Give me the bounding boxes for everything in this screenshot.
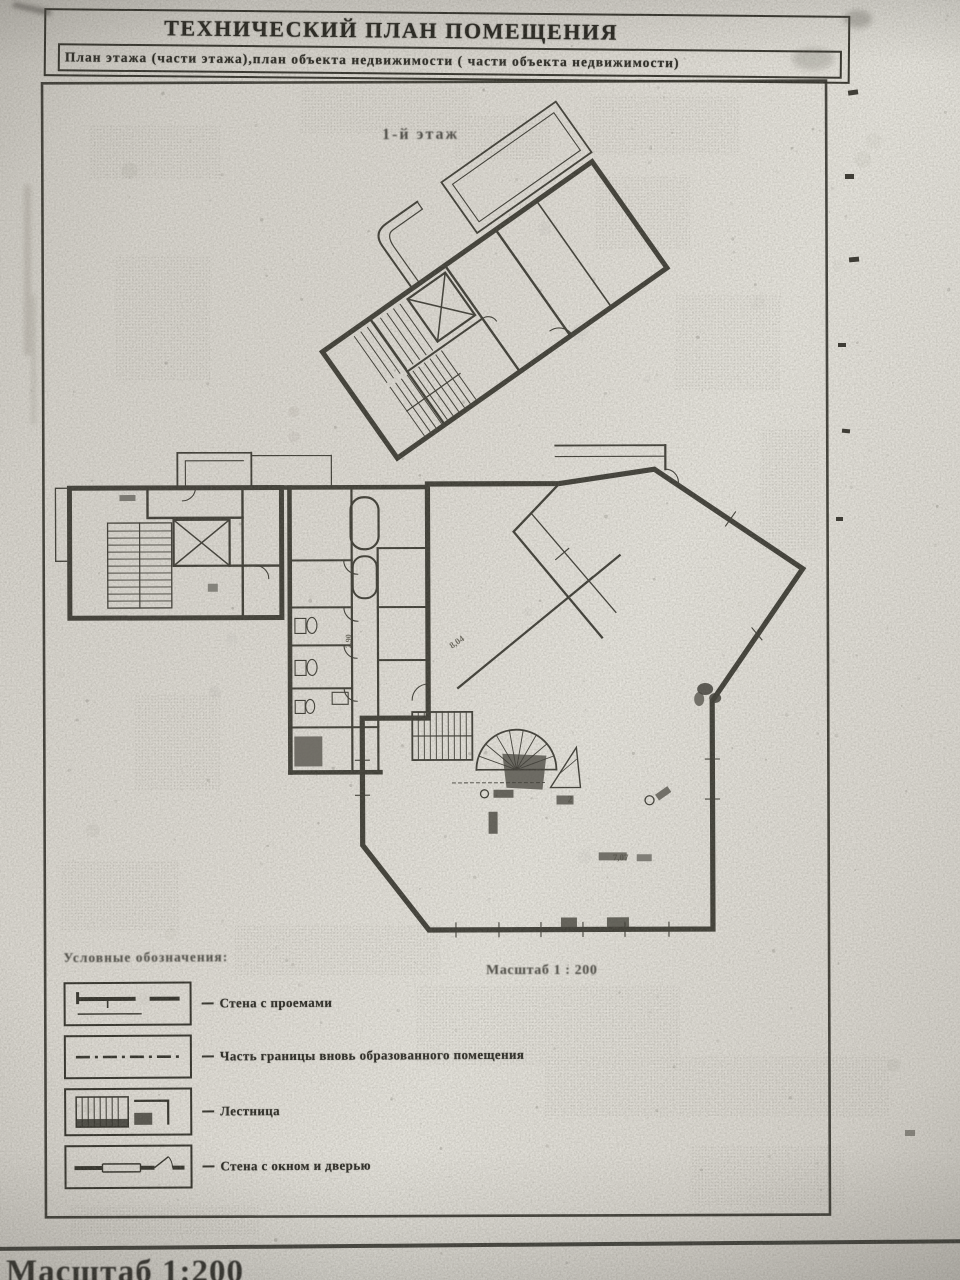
scan-smudge [792,48,834,70]
floor-label: 1-й этаж [382,126,459,144]
footer-scale-fragment: Масштаб 1:200 [6,1254,244,1280]
legend-dash [202,1055,214,1058]
stairs-icon [64,1088,192,1137]
legend-item-stairs: Лестница [64,1086,525,1136]
formed-boundary-icon [64,1035,192,1080]
legend-item-wall-window-door: Стена с окном и дверью [64,1143,525,1189]
plan-annotations: 8,047,0722,90 [344,632,629,863]
column-capsule [350,497,378,549]
legend-label: Лестница [220,1103,280,1119]
legend-dash [202,1165,214,1168]
legend-label: Стена с проемами [220,995,333,1012]
door-arc [482,282,572,372]
door-arc [182,488,195,501]
door-arc [412,684,428,700]
plan-annotation: 8,04 [447,633,466,651]
scan-smudge [844,10,872,28]
document-title: ТЕХНИЧЕСКИЙ ПЛАН ПОМЕЩЕНИЯ [164,15,618,45]
legend-label: Стена с окном и дверью [220,1158,371,1175]
wall-window-door-icon [64,1145,192,1190]
rotated-wing [282,102,671,459]
title-block: ТЕХНИЧЕСКИЙ ПЛАН ПОМЕЩЕНИЯ План этажа (ч… [44,8,851,84]
document-subtitle: План этажа (части этажа),план объекта не… [60,49,680,71]
plan-annotation: 2,90 [344,634,353,648]
canopy-hook [373,202,456,289]
dark-room-blob [294,736,322,766]
door-arc [344,560,358,701]
wall-with-openings-icon [64,982,192,1027]
plan-annotation: 2 [568,795,573,806]
legend-dash [202,1110,214,1113]
printed-content: ТЕХНИЧЕСКИЙ ПЛАН ПОМЕЩЕНИЯ План этажа (ч… [0,0,960,1280]
main-block-outline [361,469,804,931]
scan-blobs [119,493,722,929]
balcony-outline [441,102,591,233]
entrance-canopy [177,453,251,488]
plan-annotation: 7,07 [613,852,629,862]
left-stair-block [55,453,282,619]
elevator-shaft-icon [408,273,476,342]
straight-stair-icon [412,712,472,760]
window-ticks [355,512,763,937]
staircase-icon [354,299,477,435]
fixture-circles [480,789,654,805]
sanitary-fixtures [295,617,348,713]
staircase-icon [108,523,172,608]
door-arc [665,469,678,482]
footer-divider-line [0,1239,960,1251]
elevator-shaft-icon [174,520,230,566]
door-arc [256,566,269,579]
legend-dash [202,1002,214,1005]
central-rooms [251,455,428,773]
hall-partitions [411,485,620,700]
scanned-page: ТЕХНИЧЕСКИЙ ПЛАН ПОМЕЩЕНИЯ План этажа (ч… [0,0,960,1280]
legend-label: Часть границы вновь образованного помеще… [220,1047,524,1065]
legend-item-wall-openings: Стена с проемами [64,980,525,1026]
legend-heading: Условные обозначения: [63,948,523,966]
column-capsule [353,556,377,598]
spiral-stair-icon [452,729,580,789]
legend-item-formed-boundary: Часть границы вновь образованного помеще… [64,1033,525,1079]
legend: Условные обозначения: Стена с прое [63,948,525,1198]
